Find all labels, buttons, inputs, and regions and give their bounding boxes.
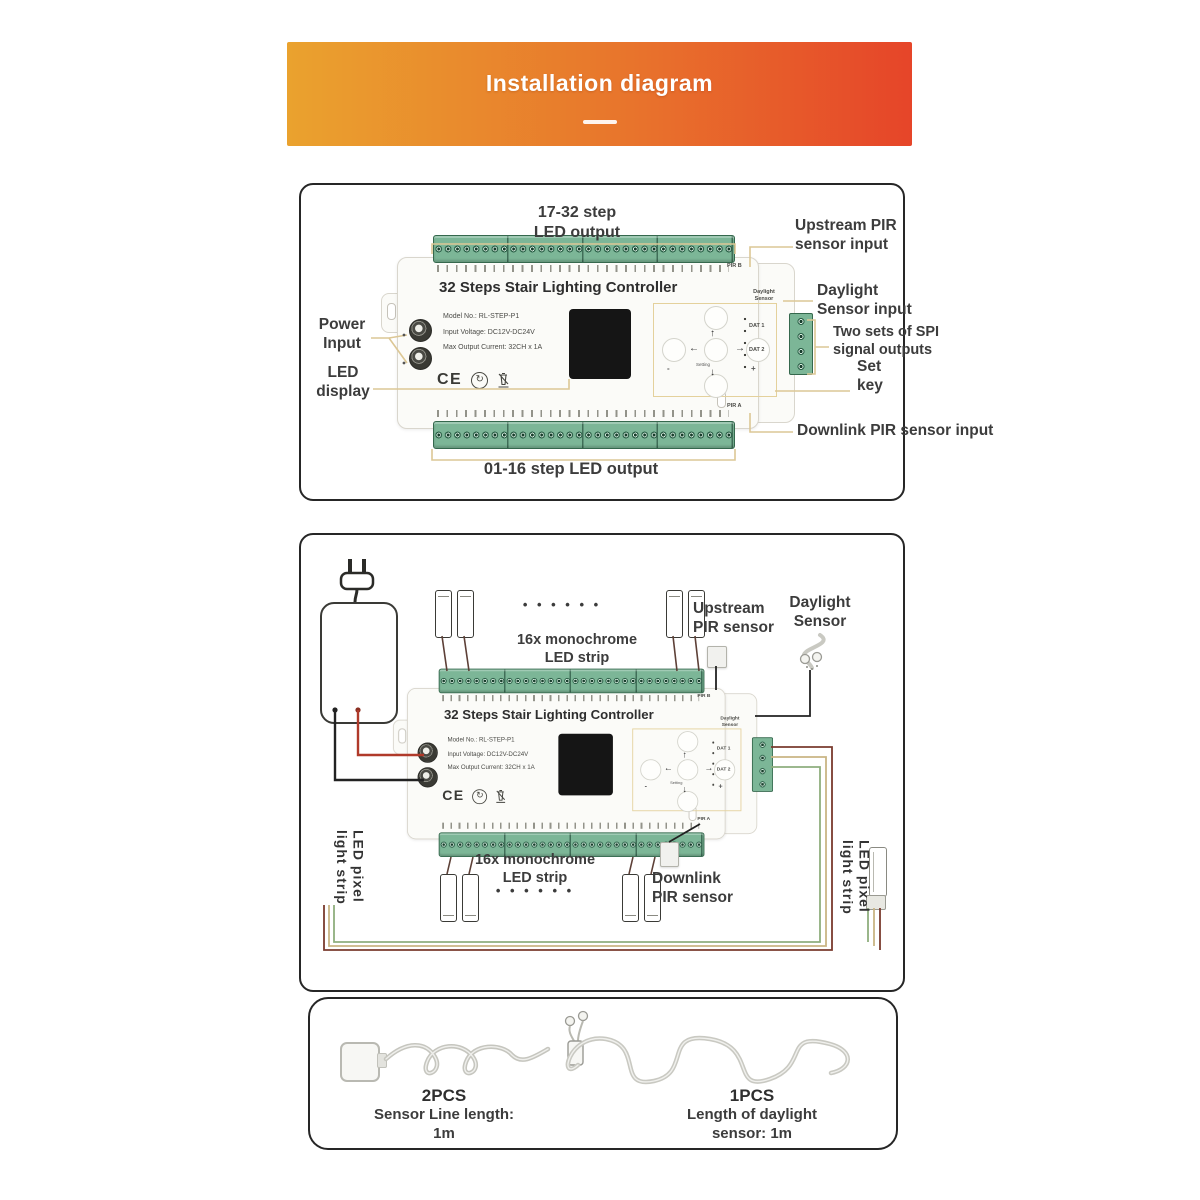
label-led-pixel-strip-right: LED pixel light strip bbox=[839, 840, 873, 940]
dat1-label: DAT 1 bbox=[717, 746, 731, 752]
set-button[interactable] bbox=[704, 338, 728, 362]
led-strip bbox=[457, 590, 474, 638]
pir-b-port-label: PIR B bbox=[697, 693, 710, 699]
led-display bbox=[558, 734, 613, 796]
recycle-icon: ↻ bbox=[471, 372, 488, 389]
sensor-cable-nub bbox=[377, 1053, 387, 1068]
label-led-pixel-strip-left: LED pixel light strip bbox=[333, 830, 367, 930]
down-arrow-icon: ↓ bbox=[682, 786, 686, 795]
label-spi-outputs: Two sets of SPI signal outputs bbox=[833, 323, 939, 359]
label-monochrome-strip-top: 16x monochrome LED strip bbox=[497, 631, 657, 667]
controller-title: 32 Steps Stair Lighting Controller bbox=[444, 707, 654, 722]
weee-bin-icon bbox=[495, 789, 506, 803]
quantity-badge: 1PCS bbox=[632, 1085, 872, 1106]
power-screw-terminal bbox=[418, 743, 438, 763]
left-button[interactable] bbox=[662, 338, 686, 362]
left-button[interactable] bbox=[640, 759, 661, 780]
up-button[interactable] bbox=[677, 731, 698, 752]
minus-mark: - bbox=[667, 364, 670, 373]
accessory-left-caption: 2PCS Sensor Line length: 1m bbox=[349, 1085, 539, 1144]
down-button[interactable] bbox=[704, 374, 728, 398]
page-title: Installation diagram bbox=[287, 70, 912, 97]
pin-row bbox=[437, 410, 729, 417]
led-output-terminal-bottom bbox=[433, 421, 735, 449]
label-monochrome-strip-bottom: 16x monochrome LED strip bbox=[455, 851, 615, 887]
pir-a-port-label: PIR A bbox=[697, 816, 710, 822]
controller-title: 32 Steps Stair Lighting Controller bbox=[439, 279, 677, 296]
mounting-hole bbox=[398, 728, 406, 743]
set-button[interactable] bbox=[677, 759, 698, 780]
pin-row bbox=[437, 265, 729, 272]
left-arrow-icon: ← bbox=[664, 765, 673, 774]
controller-specs: Model No.: RL-STEP-P1 Input Voltage: DC1… bbox=[443, 309, 542, 356]
label-downlink-pir-sensor: Downlink PIR sensor bbox=[652, 869, 733, 908]
label-17-32-led-output: 17-32 step LED output bbox=[497, 203, 657, 243]
title-underline bbox=[583, 120, 617, 124]
pir-sensor-head bbox=[340, 1042, 380, 1082]
accessories-panel: 2PCS Sensor Line length: 1m 1PCS Length … bbox=[308, 997, 898, 1150]
plus-mark: + bbox=[719, 782, 723, 790]
label-01-16-led-output: 01-16 step LED output bbox=[451, 459, 691, 480]
dat1-label: DAT 1 bbox=[749, 323, 764, 330]
down-arrow-icon: ↓ bbox=[710, 368, 715, 378]
pin-row bbox=[442, 823, 699, 829]
spi-output-connector bbox=[752, 737, 773, 792]
ellipsis-dots: • • • • • • bbox=[502, 597, 622, 613]
led-strip bbox=[622, 874, 639, 922]
dat2-label: DAT 2 bbox=[717, 767, 731, 773]
led-display bbox=[569, 309, 631, 379]
power-adapter bbox=[320, 602, 398, 724]
label-daylight-sensor: Daylight Sensor bbox=[770, 593, 870, 632]
label-upstream-pir-input: Upstream PIR sensor input bbox=[795, 216, 897, 255]
dat2-label: DAT 2 bbox=[749, 347, 764, 354]
quantity-badge: 2PCS bbox=[349, 1085, 539, 1106]
daylight-port-label: Daylight Sensor bbox=[737, 289, 791, 303]
label-upstream-pir-sensor: Upstream PIR sensor bbox=[693, 599, 774, 638]
left-arrow-icon: ← bbox=[689, 344, 699, 354]
setting-label: Setting bbox=[696, 362, 710, 367]
dat-pin-dots bbox=[743, 315, 747, 373]
dat-pin-dots bbox=[711, 739, 715, 790]
led-output-terminal-top bbox=[439, 669, 705, 694]
setting-label: Setting bbox=[670, 780, 682, 784]
installation-diagram-page: Installation diagram 32 Steps Stair Ligh… bbox=[0, 0, 1200, 1200]
daylight-port-label: Daylight Sensor bbox=[706, 716, 754, 728]
certification-marks: CE ↻ bbox=[437, 371, 510, 389]
pin-row bbox=[442, 695, 699, 701]
spi-output-connector bbox=[789, 313, 813, 375]
controller-overview-panel: 32 Steps Stair Lighting Controller Model… bbox=[299, 183, 905, 501]
minus-mark: - bbox=[645, 782, 647, 790]
certification-marks: CE ↻ bbox=[442, 788, 506, 804]
label-set-key: Set key bbox=[857, 357, 883, 396]
led-strip bbox=[435, 590, 452, 638]
recycle-icon: ↻ bbox=[472, 789, 487, 804]
pir-a-port-label: PIR A bbox=[727, 403, 741, 410]
ce-mark: CE bbox=[437, 371, 462, 389]
up-button[interactable] bbox=[704, 306, 728, 330]
controller-specs: Model No.: RL-STEP-P1 Input Voltage: DC1… bbox=[447, 734, 534, 775]
mounting-hole bbox=[387, 303, 396, 320]
plus-mark: + bbox=[751, 364, 756, 373]
ce-mark: CE bbox=[442, 788, 464, 804]
power-screw-terminal bbox=[418, 767, 438, 787]
accessory-right-caption: 1PCS Length of daylight sensor: 1m bbox=[632, 1085, 872, 1144]
wiring-diagram-panel: 32 Steps Stair Lighting Controller Model… bbox=[299, 533, 905, 992]
downlink-pir-sensor bbox=[660, 842, 679, 867]
up-arrow-icon: ↑ bbox=[710, 329, 715, 339]
up-arrow-icon: ↑ bbox=[682, 751, 686, 760]
power-screw-terminal bbox=[409, 347, 432, 370]
label-power-input: Power Input bbox=[313, 315, 371, 354]
title-banner: Installation diagram bbox=[287, 42, 912, 146]
power-screw-terminal bbox=[409, 319, 432, 342]
ellipsis-dots: • • • • • • bbox=[475, 883, 595, 899]
weee-bin-icon bbox=[497, 372, 510, 388]
pir-b-port-label: PIR B bbox=[727, 263, 742, 270]
upstream-pir-sensor bbox=[707, 646, 727, 668]
down-button[interactable] bbox=[677, 791, 698, 812]
label-daylight-sensor-input: Daylight Sensor input bbox=[817, 281, 912, 320]
led-strip bbox=[666, 590, 683, 638]
label-led-display: LED display bbox=[313, 363, 373, 402]
label-downlink-pir-input: Downlink PIR sensor input bbox=[797, 421, 993, 440]
